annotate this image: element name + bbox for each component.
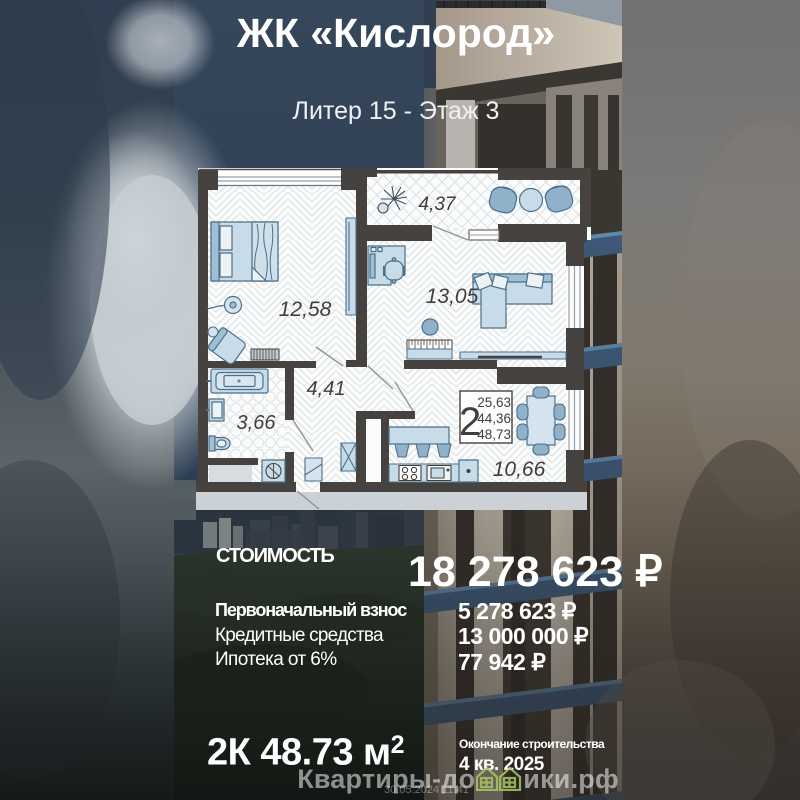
svg-text:4,41: 4,41 xyxy=(307,378,346,400)
svg-text:10,66: 10,66 xyxy=(493,458,546,481)
svg-text:12,58: 12,58 xyxy=(279,298,332,321)
svg-text:3,66: 3,66 xyxy=(237,412,277,434)
svg-text:48,73: 48,73 xyxy=(477,427,511,442)
svg-text:13,05: 13,05 xyxy=(426,285,479,308)
svg-text:44,36: 44,36 xyxy=(477,411,511,426)
svg-text:25,63: 25,63 xyxy=(477,395,511,410)
svg-text:4,37: 4,37 xyxy=(419,194,457,215)
